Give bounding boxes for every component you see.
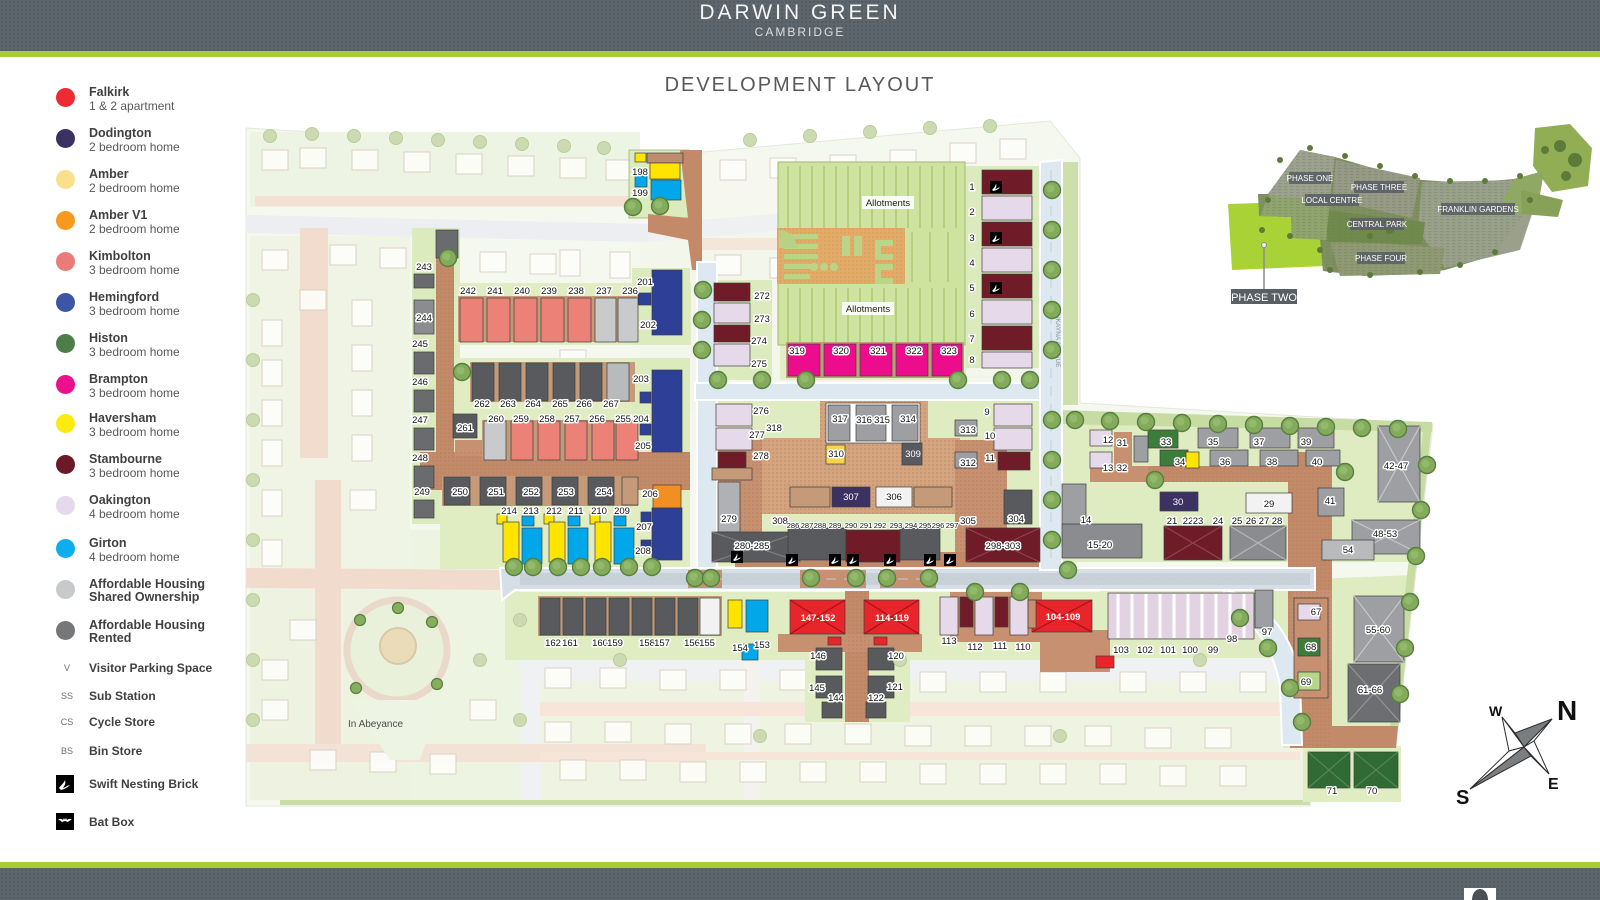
svg-text:70: 70 bbox=[1367, 786, 1378, 797]
svg-text:48-53: 48-53 bbox=[1373, 529, 1397, 540]
svg-text:209: 209 bbox=[614, 506, 630, 517]
svg-text:307: 307 bbox=[843, 492, 859, 503]
svg-text:5: 5 bbox=[969, 283, 974, 294]
svg-text:113: 113 bbox=[941, 636, 956, 647]
svg-text:97: 97 bbox=[1262, 627, 1273, 638]
svg-text:154: 154 bbox=[732, 643, 748, 654]
svg-text:11: 11 bbox=[985, 453, 995, 464]
svg-text:316: 316 bbox=[856, 415, 872, 426]
svg-text:255: 255 bbox=[615, 414, 631, 425]
svg-text:110: 110 bbox=[1015, 642, 1030, 653]
svg-text:27: 27 bbox=[1259, 516, 1270, 527]
svg-text:321: 321 bbox=[870, 346, 886, 357]
svg-text:157: 157 bbox=[654, 638, 670, 649]
svg-text:298-303: 298-303 bbox=[986, 541, 1021, 552]
svg-text:278: 278 bbox=[753, 451, 769, 462]
svg-text:245: 245 bbox=[412, 339, 428, 350]
svg-text:251: 251 bbox=[488, 487, 504, 498]
svg-text:261: 261 bbox=[457, 423, 473, 434]
svg-text:Allotments: Allotments bbox=[866, 198, 911, 209]
svg-text:208: 208 bbox=[635, 546, 651, 557]
svg-text:FUKAYNA AVENUE: FUKAYNA AVENUE bbox=[1054, 310, 1061, 368]
svg-text:159: 159 bbox=[607, 638, 623, 649]
svg-text:111: 111 bbox=[993, 641, 1007, 652]
svg-text:252: 252 bbox=[523, 487, 539, 498]
svg-text:240: 240 bbox=[514, 286, 530, 297]
svg-text:25: 25 bbox=[1232, 516, 1243, 527]
svg-text:206: 206 bbox=[642, 489, 658, 500]
svg-text:158: 158 bbox=[639, 638, 655, 649]
svg-text:4: 4 bbox=[969, 258, 974, 269]
svg-text:238: 238 bbox=[568, 286, 584, 297]
svg-text:3: 3 bbox=[969, 233, 974, 244]
svg-text:54: 54 bbox=[1343, 545, 1354, 556]
svg-text:247: 247 bbox=[412, 415, 428, 426]
svg-text:55-60: 55-60 bbox=[1366, 625, 1390, 636]
svg-text:E: E bbox=[1548, 776, 1559, 793]
svg-text:254: 254 bbox=[596, 487, 612, 498]
svg-text:24: 24 bbox=[1213, 516, 1224, 527]
svg-text:122: 122 bbox=[868, 693, 884, 704]
svg-text:162: 162 bbox=[545, 638, 561, 649]
svg-text:319: 319 bbox=[789, 346, 805, 357]
svg-text:26: 26 bbox=[1246, 516, 1257, 527]
svg-text:288: 288 bbox=[814, 521, 827, 530]
svg-text:205: 205 bbox=[635, 441, 651, 452]
svg-text:236: 236 bbox=[622, 286, 638, 297]
svg-text:38: 38 bbox=[1267, 457, 1278, 468]
svg-text:297: 297 bbox=[946, 521, 959, 530]
svg-text:323: 323 bbox=[941, 346, 957, 357]
svg-text:322: 322 bbox=[906, 346, 922, 357]
svg-text:21: 21 bbox=[1167, 516, 1178, 527]
svg-text:212: 212 bbox=[546, 506, 562, 517]
svg-text:256: 256 bbox=[589, 414, 605, 425]
svg-text:39: 39 bbox=[1301, 437, 1312, 448]
svg-text:250: 250 bbox=[452, 487, 468, 498]
svg-text:274: 274 bbox=[751, 336, 767, 347]
svg-text:68: 68 bbox=[1306, 642, 1317, 653]
svg-text:145: 145 bbox=[809, 683, 825, 694]
svg-text:202: 202 bbox=[640, 320, 656, 331]
svg-text:320: 320 bbox=[833, 346, 849, 357]
svg-text:199: 199 bbox=[632, 188, 648, 199]
svg-text:PHASE TWO: PHASE TWO bbox=[1231, 292, 1297, 304]
svg-text:121: 121 bbox=[887, 682, 903, 693]
svg-text:PHASE ONE: PHASE ONE bbox=[1287, 174, 1334, 183]
svg-text:317: 317 bbox=[832, 414, 848, 425]
svg-text:14: 14 bbox=[1081, 515, 1092, 526]
svg-text:155: 155 bbox=[699, 638, 715, 649]
svg-text:286: 286 bbox=[787, 521, 800, 530]
svg-text:241: 241 bbox=[487, 286, 503, 297]
svg-text:29: 29 bbox=[1264, 499, 1275, 510]
svg-text:32: 32 bbox=[1117, 463, 1128, 474]
svg-text:273: 273 bbox=[754, 314, 770, 325]
svg-text:211: 211 bbox=[568, 506, 583, 517]
svg-text:120: 120 bbox=[888, 651, 904, 662]
svg-text:W: W bbox=[1489, 703, 1503, 719]
svg-text:198: 198 bbox=[632, 167, 648, 178]
svg-text:258: 258 bbox=[539, 414, 555, 425]
svg-text:259: 259 bbox=[513, 414, 529, 425]
svg-text:289: 289 bbox=[829, 521, 842, 530]
svg-text:40: 40 bbox=[1312, 457, 1323, 468]
svg-text:42-47: 42-47 bbox=[1384, 461, 1408, 472]
svg-text:308: 308 bbox=[772, 516, 788, 527]
svg-text:207: 207 bbox=[636, 522, 652, 533]
svg-text:277: 277 bbox=[749, 430, 765, 441]
svg-text:312: 312 bbox=[960, 458, 976, 469]
svg-text:99: 99 bbox=[1208, 645, 1219, 656]
svg-text:201: 201 bbox=[637, 277, 653, 288]
svg-text:FRANKLIN GARDENS: FRANKLIN GARDENS bbox=[1437, 205, 1518, 214]
svg-text:31: 31 bbox=[1117, 438, 1128, 449]
svg-text:203: 203 bbox=[633, 374, 649, 385]
svg-text:37: 37 bbox=[1254, 437, 1265, 448]
svg-text:262: 262 bbox=[474, 399, 490, 410]
svg-text:246: 246 bbox=[412, 377, 428, 388]
svg-text:315: 315 bbox=[874, 415, 890, 426]
svg-text:147-152: 147-152 bbox=[801, 613, 836, 624]
svg-text:103: 103 bbox=[1113, 645, 1129, 656]
svg-text:242: 242 bbox=[460, 286, 476, 297]
svg-text:33: 33 bbox=[1161, 437, 1172, 448]
svg-text:114-119: 114-119 bbox=[875, 613, 909, 624]
svg-text:156: 156 bbox=[684, 638, 700, 649]
svg-text:244: 244 bbox=[416, 313, 432, 324]
svg-text:7: 7 bbox=[969, 334, 974, 345]
svg-text:304: 304 bbox=[1008, 514, 1024, 525]
svg-text:214: 214 bbox=[501, 506, 517, 517]
svg-text:161: 161 bbox=[562, 638, 578, 649]
svg-text:Allotments: Allotments bbox=[846, 304, 891, 315]
svg-text:266: 266 bbox=[576, 399, 592, 410]
svg-text:263: 263 bbox=[500, 399, 516, 410]
svg-text:160: 160 bbox=[592, 638, 608, 649]
svg-text:LOCAL CENTRE: LOCAL CENTRE bbox=[1301, 196, 1362, 205]
svg-text:305: 305 bbox=[960, 516, 976, 527]
svg-text:280-285: 280-285 bbox=[735, 541, 770, 552]
svg-text:287: 287 bbox=[801, 521, 814, 530]
svg-text:210: 210 bbox=[591, 506, 607, 517]
svg-text:98: 98 bbox=[1227, 634, 1238, 645]
svg-text:296: 296 bbox=[932, 521, 945, 530]
svg-text:8: 8 bbox=[969, 355, 974, 366]
svg-text:71: 71 bbox=[1327, 786, 1338, 797]
svg-text:N: N bbox=[1557, 695, 1577, 726]
svg-text:257: 257 bbox=[564, 414, 580, 425]
svg-text:23: 23 bbox=[1193, 516, 1204, 527]
svg-text:309: 309 bbox=[905, 449, 921, 460]
svg-text:275: 275 bbox=[751, 359, 767, 370]
svg-text:295: 295 bbox=[919, 521, 932, 530]
svg-text:279: 279 bbox=[721, 514, 737, 525]
svg-text:264: 264 bbox=[525, 399, 541, 410]
svg-text:265: 265 bbox=[552, 399, 568, 410]
svg-text:213: 213 bbox=[523, 506, 539, 517]
svg-text:294: 294 bbox=[905, 521, 918, 530]
svg-text:146: 146 bbox=[810, 651, 826, 662]
svg-text:41: 41 bbox=[1325, 496, 1336, 507]
svg-text:318: 318 bbox=[766, 423, 782, 434]
svg-text:153: 153 bbox=[754, 640, 770, 651]
svg-text:36: 36 bbox=[1220, 457, 1231, 468]
svg-text:6: 6 bbox=[969, 309, 974, 320]
svg-text:28: 28 bbox=[1272, 516, 1283, 527]
svg-text:1: 1 bbox=[969, 182, 974, 193]
svg-text:15-20: 15-20 bbox=[1088, 540, 1112, 551]
svg-text:102: 102 bbox=[1137, 645, 1153, 656]
svg-text:61-66: 61-66 bbox=[1358, 685, 1382, 696]
svg-text:22: 22 bbox=[1183, 516, 1194, 527]
svg-text:35: 35 bbox=[1208, 437, 1219, 448]
svg-text:253: 253 bbox=[558, 487, 574, 498]
svg-text:267: 267 bbox=[603, 399, 619, 410]
svg-text:101: 101 bbox=[1160, 645, 1176, 656]
svg-text:276: 276 bbox=[753, 406, 769, 417]
svg-text:In Abeyance: In Abeyance bbox=[348, 719, 403, 730]
svg-text:293: 293 bbox=[890, 521, 903, 530]
svg-text:13: 13 bbox=[1103, 463, 1114, 474]
svg-text:290: 290 bbox=[845, 521, 858, 530]
svg-text:291: 291 bbox=[860, 521, 873, 530]
svg-text:239: 239 bbox=[541, 286, 557, 297]
svg-text:2: 2 bbox=[969, 207, 974, 218]
svg-text:10: 10 bbox=[985, 431, 996, 442]
svg-text:310: 310 bbox=[828, 449, 844, 460]
svg-text:9: 9 bbox=[984, 407, 989, 418]
svg-text:CENTRAL PARK: CENTRAL PARK bbox=[1347, 220, 1408, 229]
svg-text:313: 313 bbox=[960, 425, 976, 436]
svg-text:34: 34 bbox=[1175, 457, 1186, 468]
svg-text:PHASE FOUR: PHASE FOUR bbox=[1355, 254, 1407, 263]
svg-text:306: 306 bbox=[886, 492, 902, 503]
svg-text:237: 237 bbox=[596, 286, 612, 297]
svg-text:292: 292 bbox=[874, 521, 887, 530]
svg-text:204: 204 bbox=[633, 414, 649, 425]
svg-text:PHASE THREE: PHASE THREE bbox=[1351, 183, 1407, 192]
svg-text:249: 249 bbox=[414, 487, 430, 498]
svg-text:67: 67 bbox=[1311, 607, 1322, 618]
svg-text:144: 144 bbox=[828, 693, 844, 704]
svg-text:272: 272 bbox=[754, 291, 770, 302]
svg-text:100: 100 bbox=[1182, 645, 1198, 656]
svg-text:112: 112 bbox=[967, 642, 982, 653]
svg-text:30: 30 bbox=[1173, 497, 1184, 508]
svg-text:248: 248 bbox=[412, 453, 428, 464]
svg-text:104-109: 104-109 bbox=[1046, 612, 1081, 623]
svg-text:243: 243 bbox=[416, 262, 432, 273]
svg-text:69: 69 bbox=[1301, 677, 1312, 688]
svg-text:314: 314 bbox=[900, 414, 916, 425]
svg-text:260: 260 bbox=[488, 414, 504, 425]
svg-text:12: 12 bbox=[1103, 435, 1114, 446]
svg-text:S: S bbox=[1456, 787, 1469, 809]
